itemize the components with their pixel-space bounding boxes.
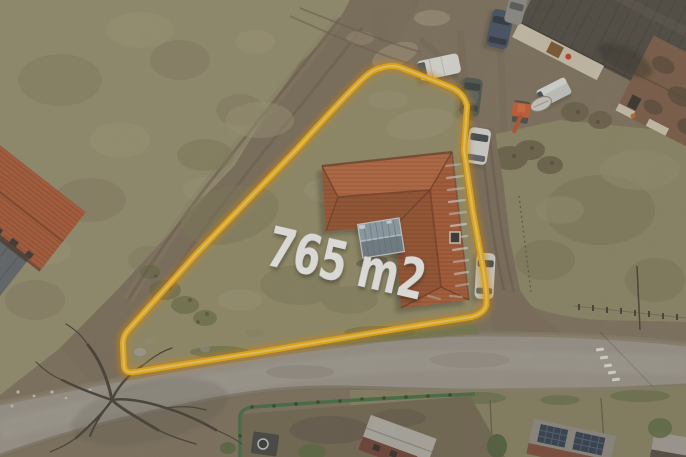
terrain-mottle [0,0,686,457]
aerial-photo: 765 m2 [0,0,686,457]
aerial-photo-listing: 765 m2 [0,0,686,457]
